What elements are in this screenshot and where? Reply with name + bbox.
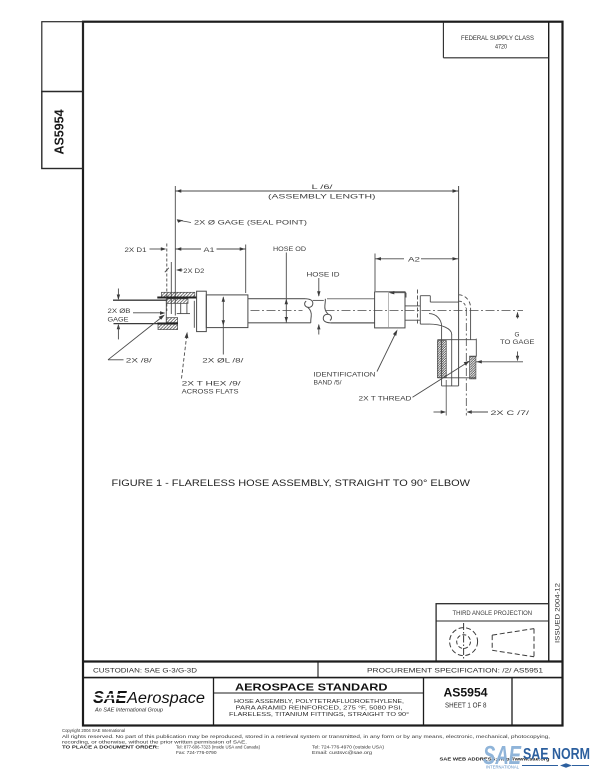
svg-text:2X ØB: 2X ØB [108, 308, 131, 315]
svg-text:L /6/: L /6/ [312, 184, 333, 191]
svg-text:2X D1: 2X D1 [125, 247, 148, 254]
svg-text:GAGE: GAGE [108, 316, 129, 323]
svg-text:AS5954: AS5954 [52, 109, 67, 155]
svg-text:A1: A1 [204, 247, 216, 254]
svg-text:2X /8/: 2X /8/ [126, 357, 152, 364]
svg-text:HOSE OD: HOSE OD [273, 246, 306, 253]
svg-text:2X Ø GAGE (SEAL POINT): 2X Ø GAGE (SEAL POINT) [194, 220, 307, 227]
svg-text:Fax: 724-776-0790: Fax: 724-776-0790 [176, 750, 217, 756]
svg-text:IDENTIFICATION: IDENTIFICATION [314, 371, 376, 378]
svg-text:SAE: SAE [93, 687, 128, 707]
svg-text:SHEET 1 OF 8: SHEET 1 OF 8 [445, 703, 487, 710]
svg-text:2X T HEX /9/: 2X T HEX /9/ [182, 381, 241, 388]
svg-text:FEDERAL SUPPLY CLASS: FEDERAL SUPPLY CLASS [461, 35, 534, 42]
svg-text:ISSUED 2004-12: ISSUED 2004-12 [555, 583, 562, 643]
svg-text:Email: custsvc@sae.org: Email: custsvc@sae.org [312, 750, 372, 756]
svg-text:CUSTODIAN: SAE G-3/G-3D: CUSTODIAN: SAE G-3/G-3D [93, 668, 197, 675]
svg-text:2X T THREAD: 2X T THREAD [359, 395, 412, 402]
svg-text:All rights reserved. No part o: All rights reserved. No part of this pub… [62, 734, 550, 740]
svg-text:AS5954: AS5954 [444, 688, 489, 700]
svg-text:2X D2: 2X D2 [183, 268, 205, 275]
svg-text:2X C /7/: 2X C /7/ [491, 410, 530, 417]
svg-text:INTERNATIONAL: INTERNATIONAL [486, 765, 520, 770]
svg-text:G: G [515, 332, 520, 339]
svg-text:TO GAGE: TO GAGE [500, 339, 535, 346]
svg-text:An SAE International Group: An SAE International Group [94, 708, 163, 714]
svg-text:PARA ARAMID REINFORCED, 275 °F: PARA ARAMID REINFORCED, 275 °F, 5080 PSI… [236, 706, 403, 712]
svg-text:FLARELESS, TITANIUM FITTINGS,: FLARELESS, TITANIUM FITTINGS, STRAIGHT T… [229, 712, 409, 718]
svg-text:BAND /5/: BAND /5/ [314, 379, 342, 386]
svg-text:Tel: 724-776-4970 (outside USA: Tel: 724-776-4970 (outside USA) [312, 744, 384, 750]
svg-text:THIRD ANGLE PROJECTION: THIRD ANGLE PROJECTION [453, 611, 533, 617]
svg-text:HOSE ASSEMBLY, POLYTETRAFLUORO: HOSE ASSEMBLY, POLYTETRAFLUOROETHYLENE, [234, 699, 404, 705]
svg-text:AEROSPACE STANDARD: AEROSPACE STANDARD [235, 682, 388, 694]
svg-text:PROCUREMENT SPECIFICATION: /2/: PROCUREMENT SPECIFICATION: /2/ AS5951 [367, 668, 543, 675]
svg-text:SAE NORM: SAE NORM [523, 746, 590, 763]
svg-text:FIGURE 1 - FLARELESS HOSE ASSE: FIGURE 1 - FLARELESS HOSE ASSEMBLY, STRA… [112, 478, 471, 488]
svg-text:A2: A2 [408, 257, 421, 264]
svg-text:Aerospace: Aerospace [126, 690, 205, 707]
svg-text:ACROSS FLATS: ACROSS FLATS [182, 388, 239, 395]
svg-text:HOSE ID: HOSE ID [307, 272, 340, 279]
svg-text:Tel: 877-606-7323 (inside USA: Tel: 877-606-7323 (inside USA and Canada… [176, 744, 260, 750]
svg-text:4720: 4720 [495, 44, 507, 51]
svg-text:TO PLACE A DOCUMENT ORDER:: TO PLACE A DOCUMENT ORDER: [62, 744, 159, 750]
svg-text:Copyright 2004 SAE Internation: Copyright 2004 SAE International [62, 728, 125, 734]
svg-text:(ASSEMBLY LENGTH): (ASSEMBLY LENGTH) [268, 194, 376, 201]
svg-text:2X ØL /8/: 2X ØL /8/ [202, 357, 243, 364]
